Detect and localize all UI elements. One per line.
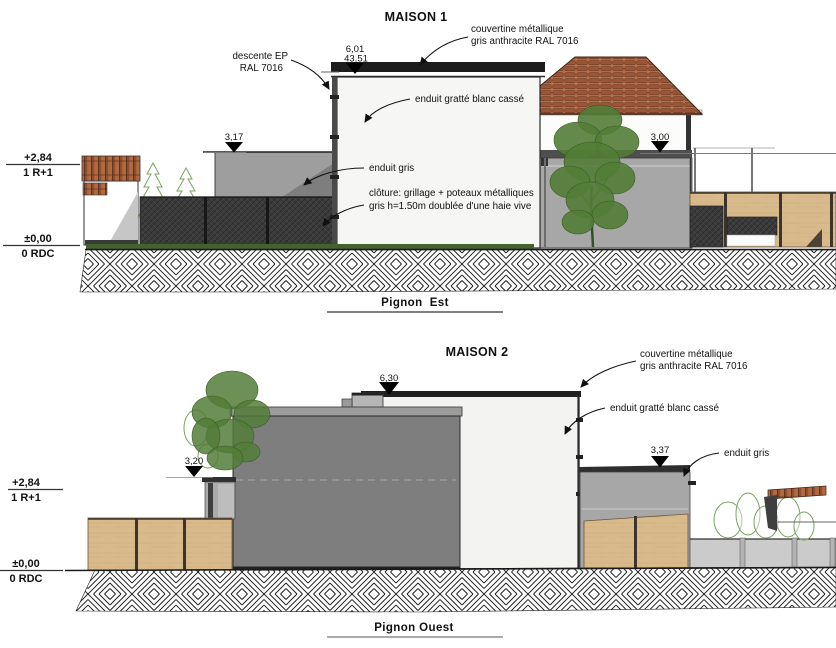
- m2-left-gray-plate: [218, 484, 234, 518]
- m1-white-house: [321, 62, 545, 248]
- m2-ann-couvertine-2: gris anthracite RAL 7016: [640, 361, 748, 372]
- m1-neighbor-tile-ledge: [83, 183, 107, 195]
- m2-ann-couvertine-1: couvertine métallique: [640, 349, 733, 360]
- elevation-sheet: MAISON 1: [0, 0, 836, 648]
- m2-pipe-clamp: [576, 455, 583, 459]
- m1-level-ground-value: ±0,00: [24, 233, 51, 245]
- m1-marker-left-triangle: [225, 142, 243, 153]
- m1-ann-descente-1: descente EP: [232, 51, 288, 62]
- maison1-elevation: MAISON 1: [3, 10, 836, 312]
- m1-ann-descente-2: RAL 7016: [240, 63, 284, 74]
- m2-couvertine-band: [361, 391, 581, 397]
- maison2-elevation: MAISON 2: [0, 345, 836, 637]
- m1-wood-fence-post: [779, 192, 782, 247]
- m1-marker-ridge-elevation: 43,51: [344, 54, 368, 65]
- m1-ann-enduit-blanc: enduit gratté blanc cassé: [415, 94, 524, 105]
- m1-downpipe: [332, 77, 338, 247]
- m2-gray-volume-face: [233, 416, 460, 570]
- m2-low-wall-post: [740, 538, 745, 570]
- m2-low-wall: [690, 539, 836, 570]
- m1-marker-wall-left: 3,17: [225, 132, 244, 143]
- m1-leader-couvertine: [420, 37, 468, 65]
- m2-wood-fence-left: [88, 518, 232, 570]
- m2-level-ground-label: 0 RDC: [9, 573, 42, 585]
- m1-ann-cloture-2: gris h=1.50m doublée d'une haie vive: [369, 201, 532, 212]
- m2-low-wall-post: [792, 538, 797, 570]
- m2-right-wall-tick: [688, 481, 696, 485]
- m2-ground-hatch: [76, 567, 836, 612]
- m2-ann-enduit-gris: enduit gris: [724, 448, 769, 459]
- m1-neighbor-tile-roof: [82, 156, 140, 181]
- maison1-title: MAISON 1: [385, 10, 448, 24]
- m2-caption: Pignon Ouest: [374, 622, 454, 634]
- m1-metal-fence: [140, 197, 337, 247]
- m1-ann-couvertine-2: gris anthracite RAL 7016: [471, 36, 579, 47]
- m1-neighbor-building: [82, 156, 140, 245]
- elevation-drawing: MAISON 1: [0, 0, 836, 648]
- m1-level-upper-label: 1 R+1: [23, 167, 53, 179]
- m2-leader-couvertine: [581, 361, 636, 387]
- m2-wood-fence-post: [183, 518, 186, 570]
- m1-leader-descente: [291, 60, 329, 89]
- m2-marker-wall-right: 3,37: [651, 445, 670, 456]
- m1-white-base: [727, 235, 775, 246]
- m1-fence-post: [266, 197, 269, 247]
- m1-caption: Pignon Est: [381, 297, 449, 309]
- m2-marker-left-triangle: [185, 466, 203, 477]
- m1-hedge-base-strip: [86, 244, 534, 250]
- m2-parapet-cap: [352, 393, 383, 396]
- m2-gray-volume: [230, 407, 462, 570]
- m2-level-datums: +2,84 1 R+1 ±0,00 0 RDC: [0, 477, 63, 585]
- m2-level-ground-value: ±0,00: [12, 558, 39, 570]
- m2-level-upper-value: +2,84: [12, 477, 41, 489]
- m1-pipe-clamp: [330, 95, 339, 99]
- m1-pipe-clamp: [330, 135, 339, 139]
- m1-ground-hatch: [80, 250, 836, 292]
- m1-ann-enduit-gris: enduit gris: [369, 163, 414, 174]
- m2-left-dark-post: [208, 483, 213, 518]
- m2-wood-fence-post: [135, 518, 138, 570]
- m2-ann-enduit-blanc: enduit gratté blanc cassé: [610, 403, 719, 414]
- m2-level-upper-label: 1 R+1: [11, 492, 41, 504]
- m1-wood-fence-post: [724, 192, 727, 247]
- m1-level-datums: +2,84 1 R+1 ±0,00 0 RDC: [3, 152, 80, 260]
- m1-dark-panel: [727, 217, 777, 235]
- maison2-title: MAISON 2: [446, 345, 509, 359]
- m2-left-garden: [88, 477, 236, 570]
- m2-marker-wall-left: 3,20: [185, 456, 204, 467]
- m1-dark-gate: [690, 206, 723, 247]
- m1-pipe-clamp: [330, 175, 339, 179]
- m1-level-upper-value: +2,84: [24, 152, 53, 164]
- m1-wood-fence-post: [830, 192, 833, 247]
- m2-low-wall-post: [830, 538, 835, 570]
- m1-fence-post: [204, 197, 207, 247]
- m1-ann-couvertine-1: couvertine métallique: [471, 24, 564, 35]
- m1-fence-panels: [140, 197, 337, 247]
- m2-shrubs: [714, 493, 814, 540]
- m1-level-ground-label: 0 RDC: [21, 248, 54, 260]
- m1-ann-cloture-1: clôture: grillage + poteaux métalliques: [369, 188, 534, 199]
- m2-wood-fence-post: [634, 516, 637, 570]
- m2-tree-foliage: [192, 371, 270, 470]
